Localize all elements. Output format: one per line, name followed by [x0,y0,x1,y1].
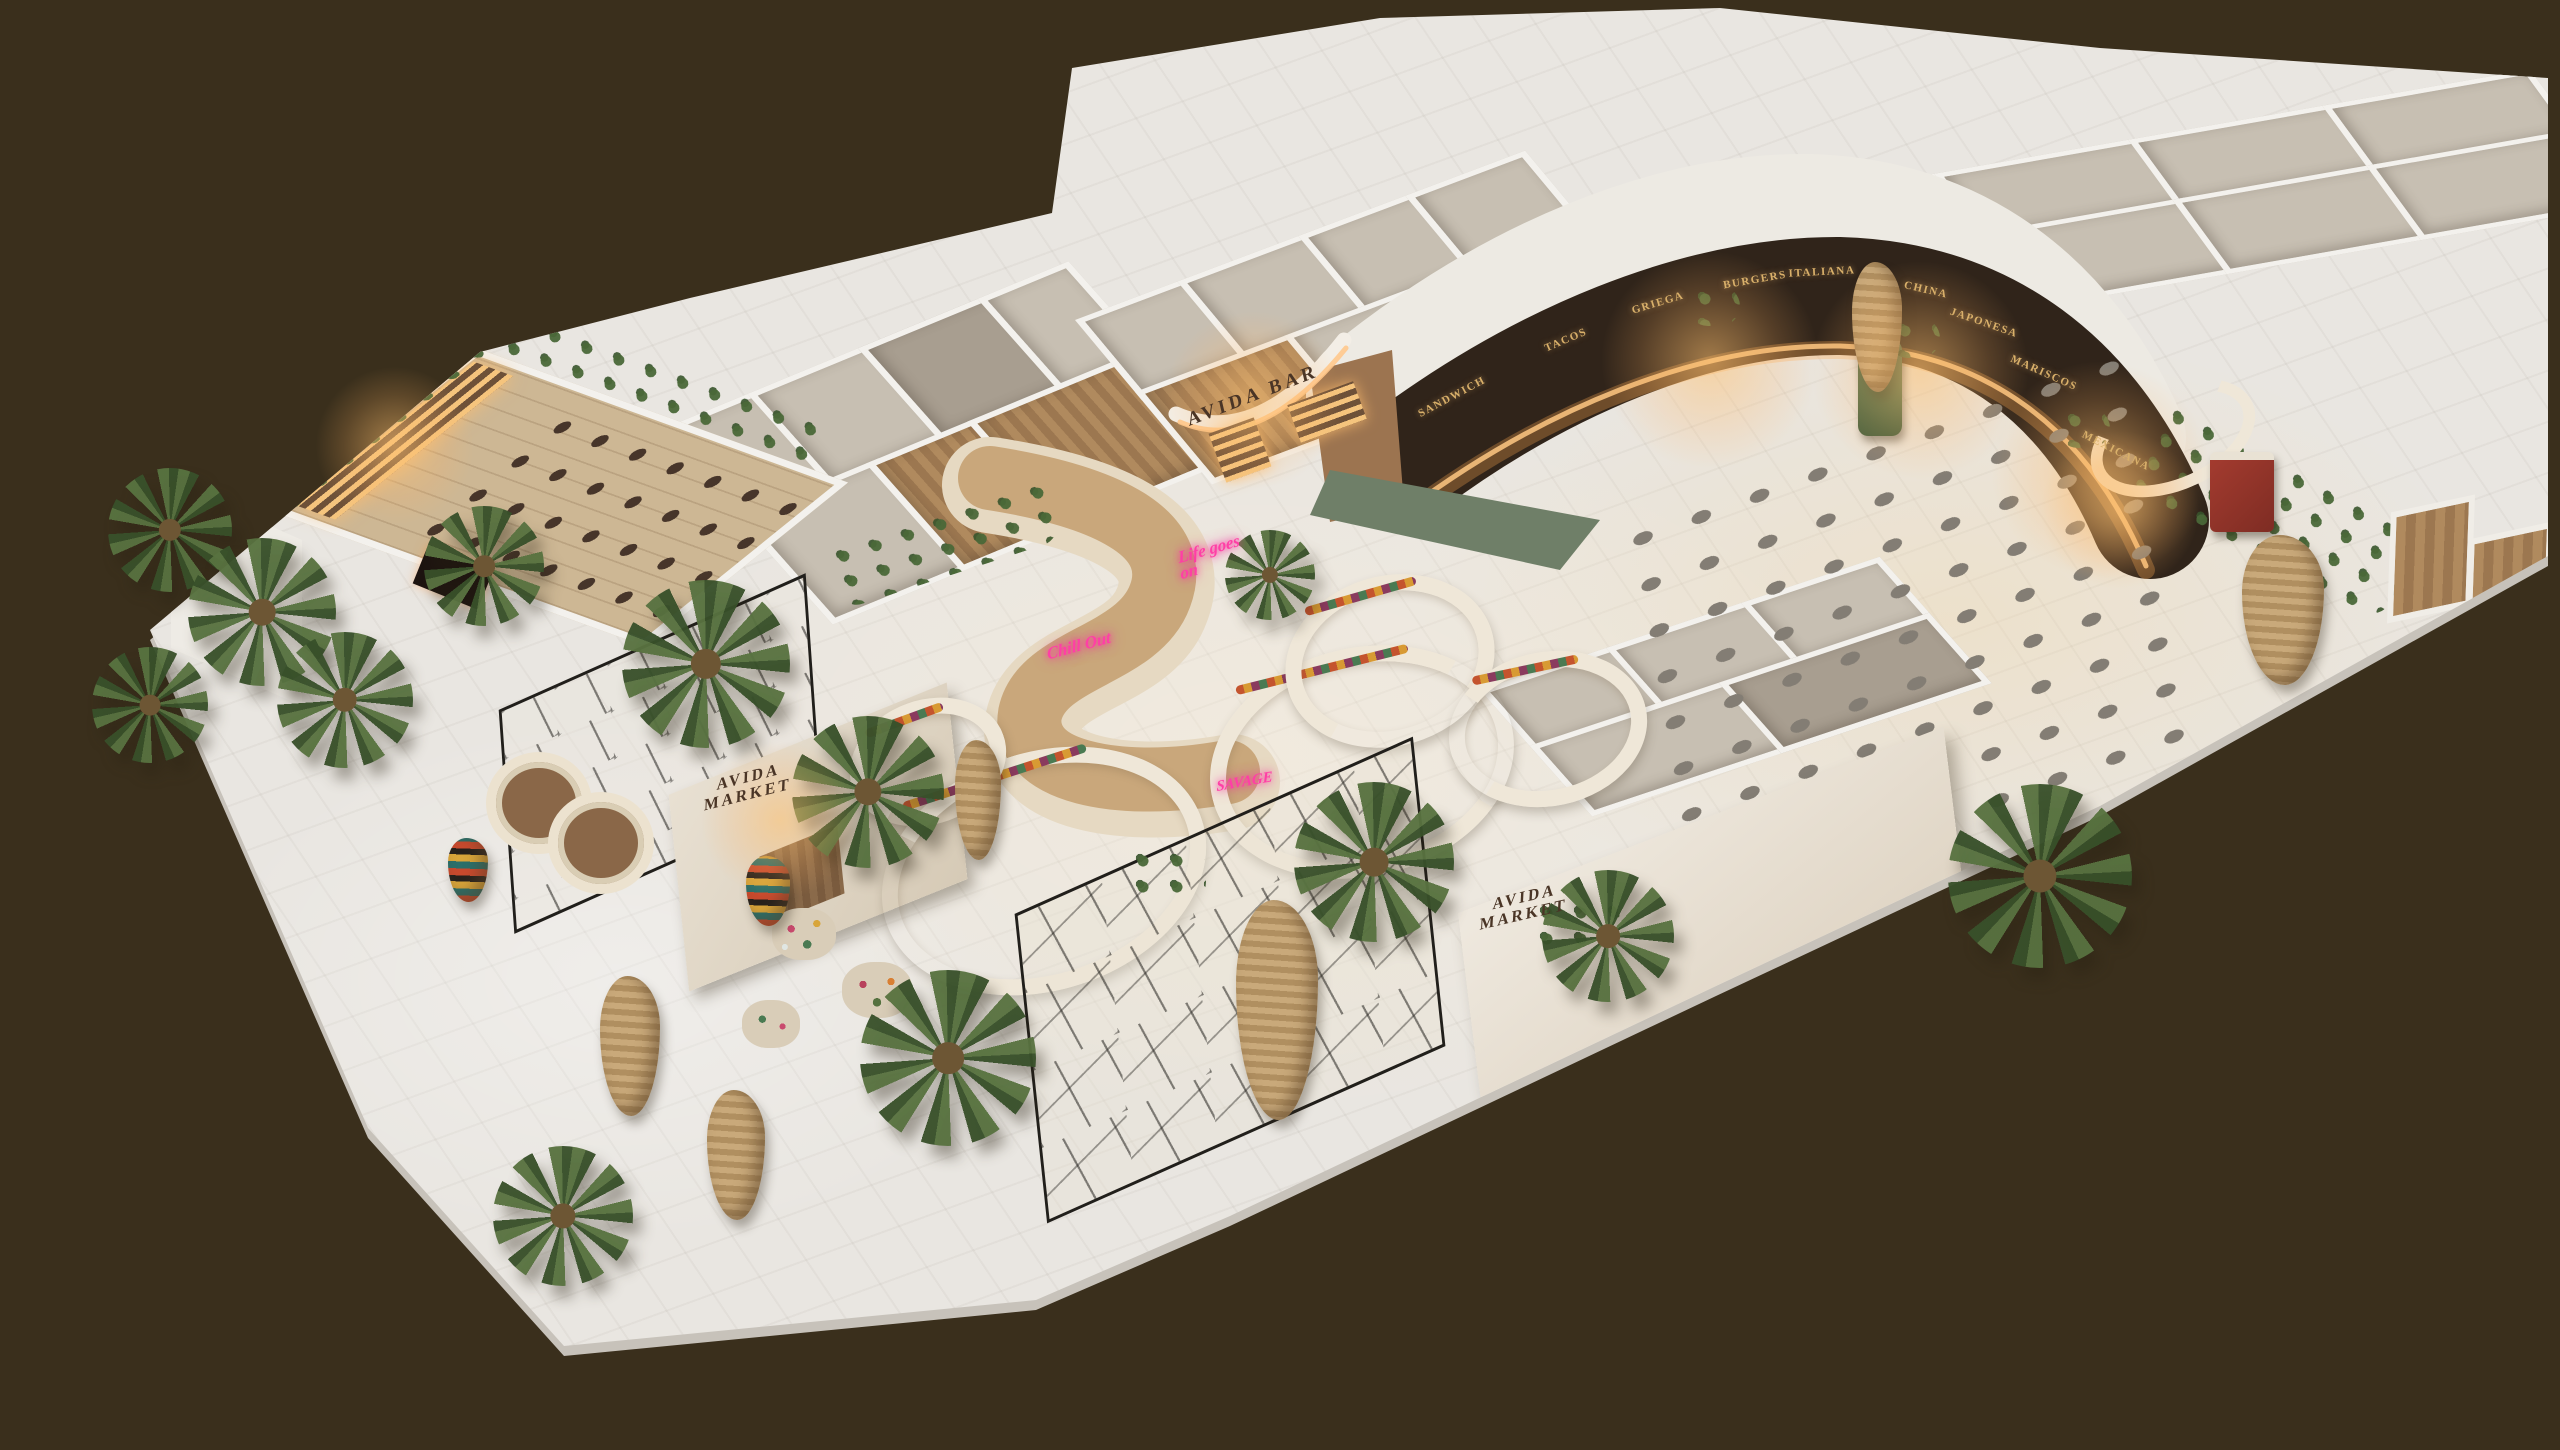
palm-tree [1294,782,1454,942]
flower-stand [742,1000,800,1048]
palm-tree [277,632,413,768]
palm-tree [860,970,1036,1146]
greenery-blob [1126,848,1206,902]
palm-tree [493,1146,633,1286]
greenery-blob [1688,286,1740,326]
palm-tree [424,506,544,626]
isometric-render-scene: AVIDA BAR AVIDA MARKET AVIDA MARKET Life… [0,0,2560,1440]
palm-tree [1948,784,2132,968]
palm-tree [92,647,208,763]
palm-tree [792,716,944,868]
palm-tree [622,580,790,748]
red-kiosk-cart [2210,452,2274,532]
